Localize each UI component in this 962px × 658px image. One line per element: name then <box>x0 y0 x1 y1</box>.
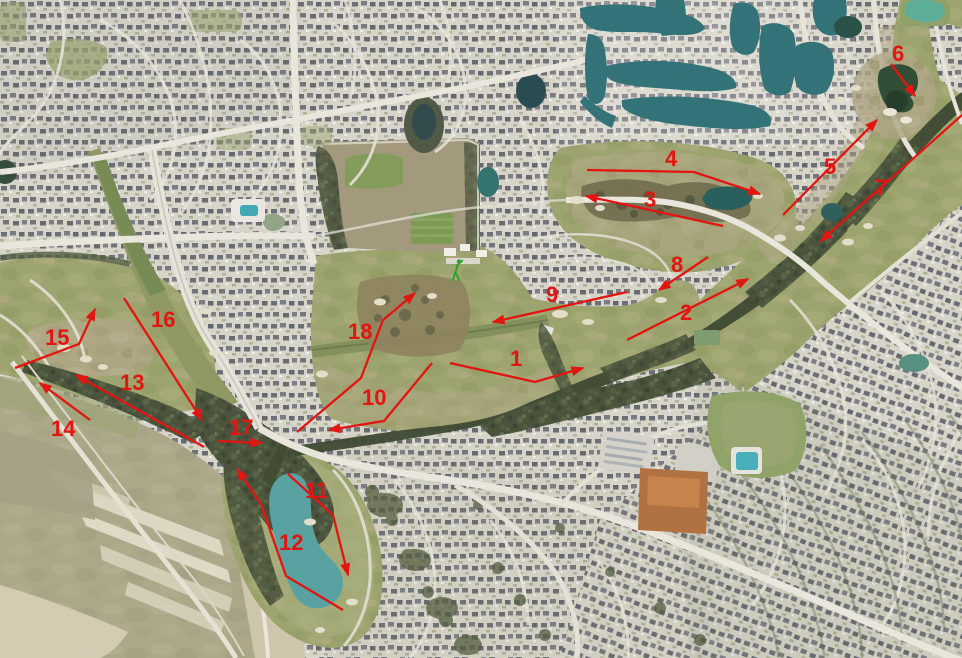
svg-text:18: 18 <box>348 319 372 344</box>
svg-text:15: 15 <box>45 325 69 350</box>
svg-text:5: 5 <box>824 154 836 179</box>
svg-text:17: 17 <box>229 415 253 440</box>
svg-text:16: 16 <box>151 307 175 332</box>
svg-text:6: 6 <box>892 41 904 66</box>
svg-text:2: 2 <box>680 300 692 325</box>
svg-text:9: 9 <box>546 282 558 307</box>
svg-text:7: 7 <box>875 175 887 200</box>
svg-text:12: 12 <box>279 530 303 555</box>
svg-text:8: 8 <box>671 252 683 277</box>
svg-text:1: 1 <box>510 346 522 371</box>
svg-text:3: 3 <box>644 187 656 212</box>
svg-text:10: 10 <box>362 385 386 410</box>
svg-text:4: 4 <box>665 146 678 171</box>
svg-text:11: 11 <box>305 478 328 503</box>
svg-text:14: 14 <box>51 416 76 441</box>
svg-text:13: 13 <box>120 370 144 395</box>
